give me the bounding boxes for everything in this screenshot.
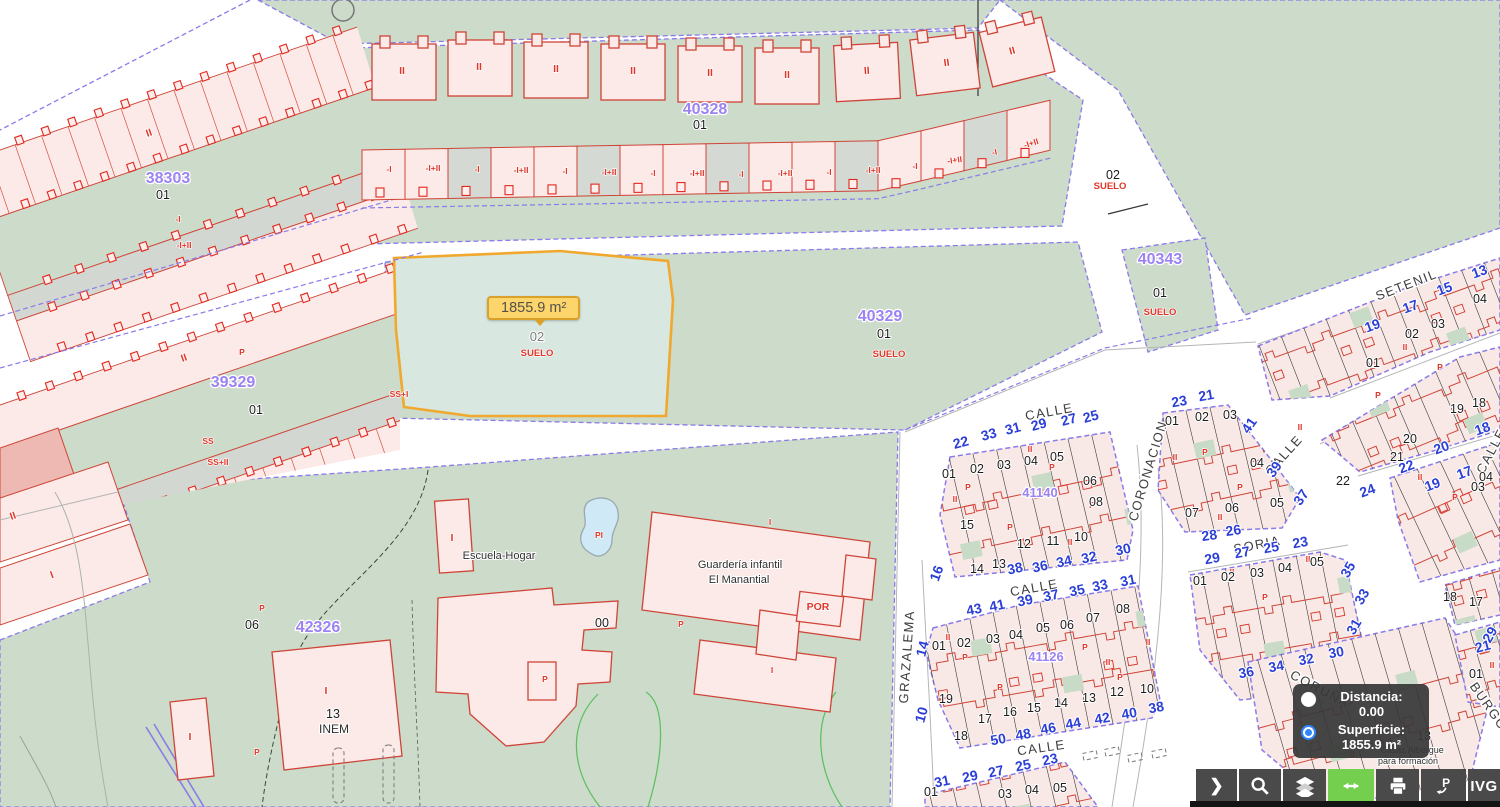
map-label: 07 <box>1086 611 1100 625</box>
map-label: -I <box>826 167 831 177</box>
map-label: -I+II <box>690 168 705 178</box>
map-label: P <box>1117 672 1123 682</box>
map-label: 26 <box>1224 521 1242 539</box>
map-label: -I+II <box>947 154 963 166</box>
map-viewer: 3830339329403284032940343423264114041126… <box>0 0 1500 807</box>
magnifier-icon <box>1249 775 1271 797</box>
map-label: 03 <box>1250 566 1264 580</box>
map-label: POR <box>807 601 830 613</box>
map-label: II <box>863 65 870 77</box>
distancia-radio[interactable] <box>1301 692 1316 707</box>
map-label: P <box>997 682 1003 692</box>
map-label: 50 <box>989 730 1007 748</box>
map-label: 00 <box>595 616 609 630</box>
map-label: -I+II <box>778 168 793 178</box>
expand-toolbar-button[interactable]: ❯ <box>1196 769 1237 803</box>
map-label: II <box>630 65 636 77</box>
map-label: 23 <box>1291 533 1309 551</box>
map-label: El Manantial <box>709 574 770 586</box>
map-label: 10 <box>1140 682 1154 696</box>
map-label: 01 <box>249 403 263 417</box>
toolbar-base-bar <box>1190 801 1500 807</box>
map-label: 25 <box>1262 538 1280 556</box>
map-label: 05 <box>1310 555 1324 569</box>
measurement-panel: Distancia: 0.00 Superficie: 1855.9 m² <box>1293 684 1429 758</box>
map-label: 16 <box>926 563 946 583</box>
map-label: II <box>476 61 482 73</box>
map-label: 24 <box>1357 480 1377 500</box>
measure-button[interactable] <box>1328 769 1374 803</box>
map-label: 18 <box>1472 396 1486 410</box>
map-label: 06 <box>1225 501 1239 515</box>
map-label: P <box>1007 522 1013 532</box>
map-label: 06 <box>1083 474 1097 488</box>
map-label: 03 <box>1431 317 1445 331</box>
map-label: -I+II <box>177 240 192 250</box>
double-arrow-icon <box>1339 775 1363 797</box>
map-label: II <box>784 69 790 81</box>
map-label: II <box>1068 537 1073 547</box>
map-label: II <box>1146 637 1151 647</box>
map-label: 28 <box>1200 526 1218 544</box>
map-label: SUELO <box>521 348 554 359</box>
map-label: 02 <box>530 329 544 344</box>
map-label: 13 <box>992 557 1006 571</box>
map-label: 38 <box>1147 698 1165 716</box>
map-canvas[interactable]: 3830339329403284032940343423264114041126… <box>0 0 1500 807</box>
map-label: P <box>1202 447 1208 457</box>
map-label: II <box>1490 660 1495 670</box>
map-label: I <box>325 685 328 697</box>
map-label: I <box>189 731 192 743</box>
map-label: -I <box>912 161 917 171</box>
map-label: 34 <box>1267 657 1285 675</box>
map-label: P <box>1082 642 1088 652</box>
map-label: 14 <box>970 562 984 576</box>
map-label: II <box>1173 452 1178 462</box>
map-label: INEM <box>319 722 349 736</box>
map-label: -I+II <box>866 165 881 175</box>
map-label: P <box>542 674 548 684</box>
map-label: 44 <box>1064 714 1082 732</box>
map-label: 29 <box>1203 549 1221 567</box>
zoom-search-button[interactable] <box>1239 769 1281 803</box>
map-label: II <box>946 632 951 642</box>
ivg-button[interactable]: IVG <box>1468 769 1500 803</box>
map-label: 06 <box>245 618 259 632</box>
map-label: II <box>1218 512 1223 522</box>
map-label: P <box>962 652 968 662</box>
map-label: -I <box>474 164 479 174</box>
map-label: -I <box>738 169 743 179</box>
map-label: 48 <box>1014 725 1032 743</box>
map-label: 31 <box>1119 571 1138 590</box>
map-label: 01 <box>156 188 170 202</box>
map-label: 01 <box>1469 667 1483 681</box>
map-label: P <box>1437 362 1443 372</box>
map-label: 15 <box>960 518 974 532</box>
map-label: II <box>953 494 958 504</box>
map-label: P <box>1262 592 1268 602</box>
map-label: 03 <box>997 458 1011 472</box>
map-label: 01 <box>1165 414 1179 428</box>
map-label: GRAZALEMA <box>896 609 917 704</box>
printer-icon <box>1387 775 1409 797</box>
map-label: 10 <box>1074 530 1088 544</box>
map-label: 08 <box>1116 602 1130 616</box>
map-label: 25 <box>1081 406 1100 426</box>
map-label: 03 <box>1223 408 1237 422</box>
map-label: 12 <box>1110 685 1124 699</box>
chevron-right-icon: ❯ <box>1209 776 1223 796</box>
map-label: SS <box>202 436 214 446</box>
parcel-point-button[interactable]: P <box>1421 769 1466 803</box>
map-label: 03 <box>1471 480 1485 494</box>
map-label: 39329 <box>211 374 256 391</box>
map-label: SS+II <box>207 457 228 467</box>
map-label: 04 <box>1009 628 1023 642</box>
map-label: I <box>451 532 454 544</box>
map-label: Guardería infantil <box>698 559 782 571</box>
map-label: 16 <box>1003 705 1017 719</box>
map-label: 20 <box>1403 432 1417 446</box>
map-label: 27 <box>1059 409 1078 429</box>
map-label: 33 <box>979 424 998 444</box>
map-label: 11 <box>1047 534 1060 548</box>
map-label: 22 <box>951 432 970 452</box>
map-label: 04 <box>1473 292 1487 306</box>
map-label: 23 <box>1170 392 1188 410</box>
map-label: 18 <box>1443 590 1457 604</box>
area-tooltip-value: 1855.9 m² <box>501 300 566 316</box>
svg-text:P: P <box>1442 776 1450 790</box>
map-label: 02 <box>970 462 984 476</box>
map-label: II <box>1028 444 1033 454</box>
map-label: 01 <box>1153 286 1167 300</box>
map-label: 02 <box>1195 410 1209 424</box>
map-label: 43 <box>965 600 984 619</box>
map-label: 17 <box>978 712 992 726</box>
map-label: 01 <box>1193 574 1207 588</box>
map-label: 42326 <box>296 619 341 636</box>
map-label: 27 <box>987 762 1006 781</box>
distancia-value: 0.00 <box>1320 705 1423 720</box>
distancia-label: Distancia: <box>1320 690 1423 705</box>
superficie-label: Superficie: <box>1320 723 1423 738</box>
map-label: P <box>254 747 260 757</box>
map-label: 38303 <box>146 170 191 187</box>
map-label: Escuela-Hogar <box>463 550 536 562</box>
map-label: II <box>1106 657 1111 667</box>
map-label: 05 <box>1036 621 1050 635</box>
map-label: 04 <box>1250 456 1264 470</box>
map-label: 21 <box>1197 386 1215 404</box>
map-label: 15 <box>1027 701 1041 715</box>
map-label: PI <box>595 530 603 540</box>
map-label: 01 <box>1366 356 1380 370</box>
map-label: 14 <box>1054 696 1068 710</box>
map-label: 19 <box>1450 402 1464 416</box>
map-label: II <box>1403 342 1408 352</box>
map-label: 01 <box>924 785 938 799</box>
map-label: 02 <box>1106 168 1120 182</box>
map-label: 04 <box>1278 561 1292 575</box>
map-label: -I <box>650 168 655 178</box>
map-label: 19 <box>939 692 953 706</box>
map-label: 35 <box>1068 581 1087 600</box>
map-label: 02 <box>957 636 971 650</box>
map-label: 30 <box>1327 643 1345 661</box>
map-label: 36 <box>1237 663 1255 681</box>
map-label: 05 <box>1053 781 1067 795</box>
map-label: 27 <box>1233 543 1251 561</box>
map-label: 40329 <box>858 308 903 325</box>
map-label: SUELO <box>873 349 906 360</box>
map-label: 17 <box>1469 595 1483 609</box>
map-label: 10 <box>911 705 931 724</box>
map-label: 05 <box>1270 496 1284 510</box>
map-label: 01 <box>932 639 946 653</box>
layers-icon <box>1294 775 1316 797</box>
map-label: II <box>553 63 559 75</box>
map-label: 01 <box>693 118 707 132</box>
map-label: 06 <box>1060 618 1074 632</box>
area-tooltip: 1855.9 m² <box>487 296 580 320</box>
map-label: SS+I <box>390 389 409 399</box>
map-label: -I <box>562 166 567 176</box>
map-label: 12 <box>1017 537 1031 551</box>
map-label: 21 <box>1390 450 1404 464</box>
map-label: II <box>707 67 713 79</box>
map-label: 46 <box>1039 719 1057 737</box>
map-label: 03 <box>986 632 1000 646</box>
ivg-label: IVG <box>1470 778 1497 795</box>
map-label: 33 <box>1091 576 1110 595</box>
map-label: I <box>771 665 773 675</box>
superficie-value: 1855.9 m² <box>1320 738 1423 753</box>
map-label: SUELO <box>1144 307 1177 318</box>
map-label: -I+II <box>602 167 617 177</box>
layers-button[interactable] <box>1283 769 1326 803</box>
map-label: 04 <box>1025 783 1039 797</box>
map-label: -I <box>386 164 391 174</box>
p-arrow-icon: P <box>1433 775 1455 797</box>
map-label: 13 <box>1082 691 1096 705</box>
superficie-row: Superficie: 1855.9 m² <box>1299 723 1423 753</box>
map-label: P <box>1452 492 1458 502</box>
map-label: 07 <box>1185 506 1199 520</box>
map-label: P <box>1237 482 1243 492</box>
map-label: 02 <box>1221 570 1235 584</box>
map-label: 40343 <box>1138 251 1183 268</box>
map-label: SUELO <box>1094 181 1127 192</box>
map-label: 04 <box>1024 454 1038 468</box>
map-label: 25 <box>1014 756 1033 775</box>
map-label: -I+II <box>514 165 529 175</box>
map-label: 02 <box>1405 327 1419 341</box>
map-label: 41126 <box>1028 649 1063 664</box>
superficie-radio[interactable] <box>1301 725 1316 740</box>
map-label: P <box>1375 390 1381 400</box>
map-label: P <box>239 347 245 357</box>
map-label: P <box>965 482 971 492</box>
map-label: 42 <box>1093 709 1111 727</box>
map-label: 22 <box>1336 474 1350 488</box>
map-label: 41140 <box>1022 485 1057 500</box>
map-label: 40328 <box>683 101 728 118</box>
map-label: 40 <box>1120 704 1138 722</box>
map-label: -I+II <box>426 163 441 173</box>
map-label: 01 <box>877 327 891 341</box>
map-label: I <box>769 517 771 527</box>
map-label: P <box>678 619 684 629</box>
map-label: 41 <box>988 596 1007 615</box>
map-label: 05 <box>1050 450 1064 464</box>
map-label: 31 <box>1003 418 1022 438</box>
distancia-row: Distancia: 0.00 <box>1299 690 1423 720</box>
map-label: II <box>1298 422 1303 432</box>
map-label: 18 <box>954 729 968 743</box>
map-label: 29 <box>961 767 980 786</box>
map-label: 32 <box>1297 650 1315 668</box>
map-label: 08 <box>1089 495 1103 509</box>
map-label: -I <box>175 214 180 224</box>
map-label: 13 <box>326 707 340 721</box>
map-label: II <box>399 65 405 77</box>
map-label: 01 <box>942 467 956 481</box>
map-label: P <box>259 603 265 613</box>
print-button[interactable] <box>1376 769 1419 803</box>
map-label: 03 <box>998 787 1012 801</box>
